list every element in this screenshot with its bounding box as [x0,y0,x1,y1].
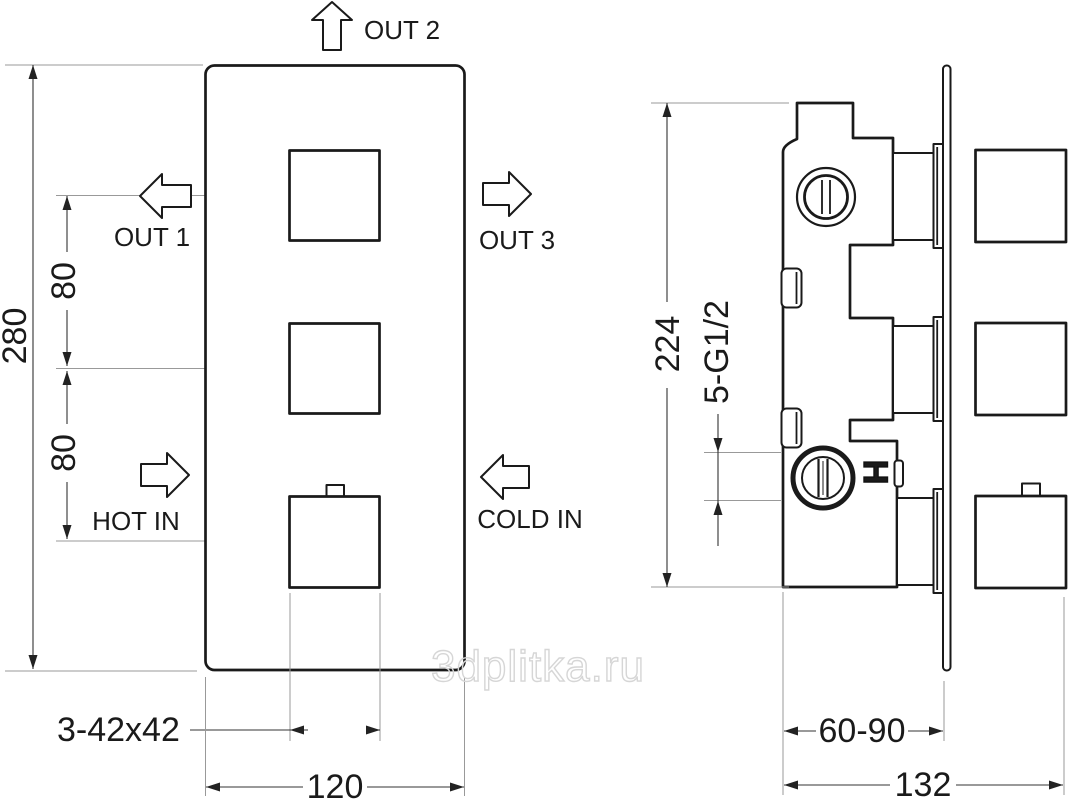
body-clip [895,461,904,487]
cold-in-label: COLD IN [477,504,582,534]
hot-in-label: HOT IN [92,506,180,536]
technical-drawing-page: OUT 2 OUT 1 OUT 3 HOT IN COLD IN 280 80 … [0,0,1068,800]
dim-60-90: 60-90 [783,592,944,795]
watermark: 3dplitka.ru [431,642,645,691]
out3-label: OUT 3 [479,225,555,255]
out2-label: OUT 2 [364,15,440,45]
cartridge-lower [793,448,853,508]
dim-80-lower: 80 [45,371,83,539]
side-knob-2 [976,323,1067,415]
dim-5g12: 5-G1/2 [698,300,781,546]
cold-in-arrow-icon [481,455,529,499]
hot-in-arrow-icon [141,453,189,497]
side-knob-3-tab [1022,484,1040,497]
dim-280-text: 280 [0,308,34,365]
rear-port-boss-1 [782,269,802,308]
dim-120: 120 [206,677,465,800]
dim-280: 280 [0,65,38,669]
dim-132: 132 [784,597,1064,800]
side-knob-3 [976,496,1067,588]
dim-132-text: 132 [895,766,952,800]
rear-port-boss-2 [782,409,802,448]
out1-arrow-icon [140,174,191,218]
dim-42x42-text: 3-42x42 [57,711,180,749]
out3-arrow-icon [483,172,531,216]
wall-plate [943,66,951,671]
side-knob-1 [976,150,1067,242]
front-knob-2 [290,324,380,414]
stem-1 [893,153,935,240]
dim-5g12-text: 5-G1/2 [698,300,736,404]
technical-drawing-canvas: OUT 2 OUT 1 OUT 3 HOT IN COLD IN 280 80 … [0,0,1068,800]
dim-60-90-text: 60-90 [819,712,906,750]
dim-80-lower-text: 80 [45,434,83,472]
valve-body [783,103,897,587]
dim-80-upper: 80 [45,196,83,366]
out2-arrow-icon [312,2,352,50]
dim-80-upper-text: 80 [45,262,83,300]
hot-marking: H [856,460,894,485]
out1-label: OUT 1 [114,222,190,252]
front-knob-1 [290,151,380,241]
dim-224-text: 224 [649,316,687,373]
stem-2 [893,326,935,413]
stem-3 [897,498,935,585]
dim-120-text: 120 [307,768,364,800]
front-knob-3 [290,497,380,588]
side-view: H 224 5-G1/2 60 [649,66,1066,800]
